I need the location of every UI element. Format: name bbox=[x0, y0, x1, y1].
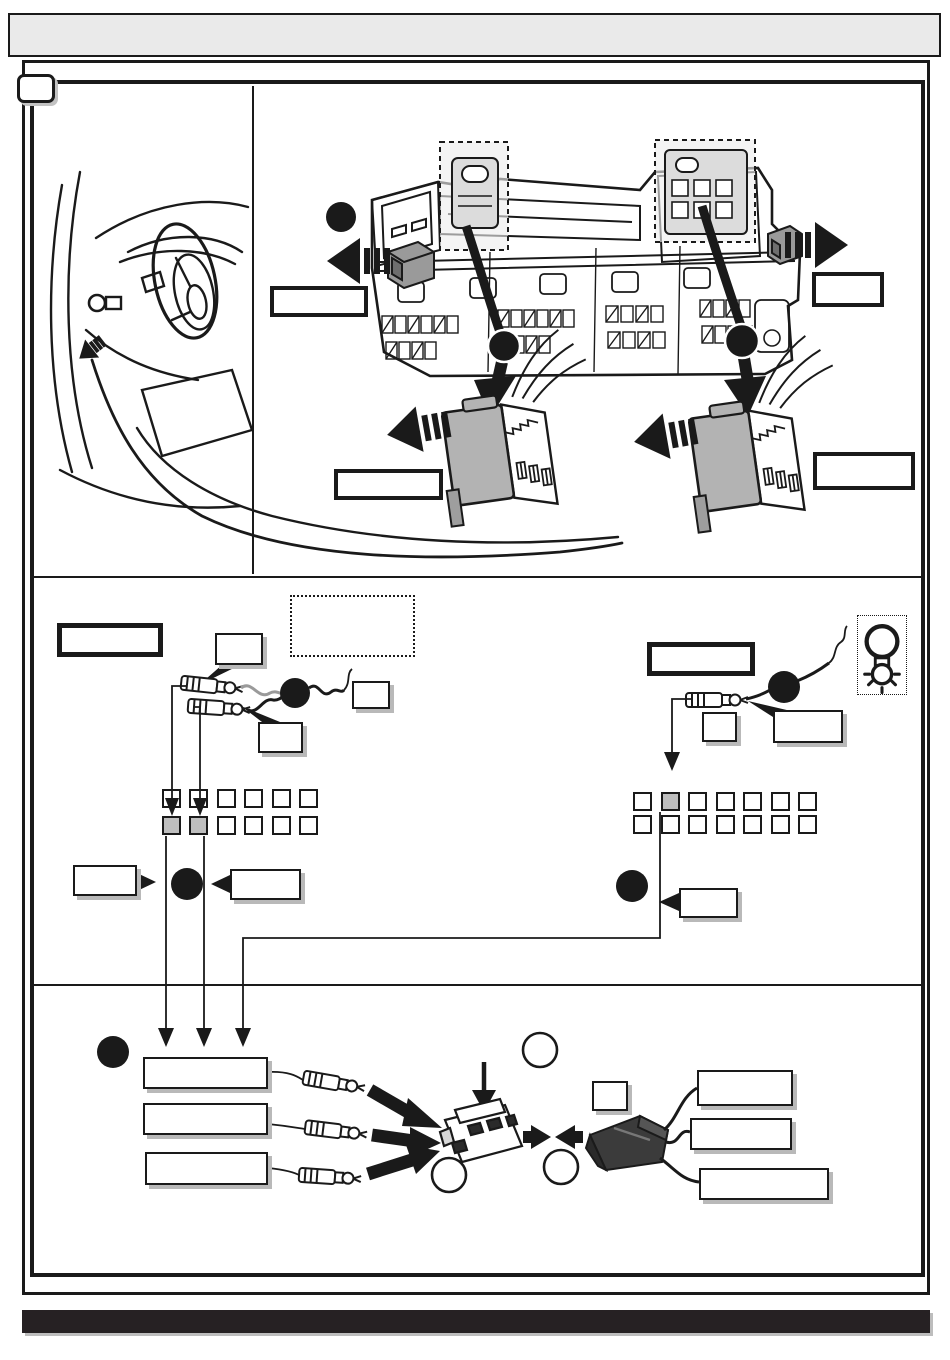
fuse-grid-cell bbox=[661, 792, 680, 811]
label-wire-2 bbox=[258, 722, 303, 753]
label-midleft-title bbox=[57, 623, 163, 657]
fuse-grid-cell bbox=[299, 816, 318, 835]
label-bottom-wire-2 bbox=[143, 1103, 268, 1135]
fuse-grid-cell bbox=[798, 815, 817, 834]
label-pin-left bbox=[73, 865, 137, 896]
vertical-divider bbox=[252, 86, 254, 574]
fuse-grid-cell bbox=[771, 815, 790, 834]
label-midright-title bbox=[647, 642, 755, 676]
fuse-grid-cell bbox=[272, 816, 291, 835]
fuse-grid-cell bbox=[189, 816, 208, 835]
label-module-left bbox=[270, 286, 368, 317]
footer-bar bbox=[22, 1310, 930, 1333]
label-out-wire-3 bbox=[699, 1168, 829, 1200]
fuse-grid-cell bbox=[743, 792, 762, 811]
label-connector-1 bbox=[334, 469, 443, 500]
label-out-wire-1 bbox=[697, 1070, 793, 1106]
header-title-bar bbox=[8, 13, 941, 57]
inline-box-bottom bbox=[592, 1081, 628, 1111]
fuse-grid-cell bbox=[217, 816, 236, 835]
label-wire-right bbox=[773, 710, 843, 743]
fuse-grid-cell bbox=[189, 789, 208, 808]
fuse-grid-cell bbox=[272, 789, 291, 808]
note-box-dotted bbox=[290, 595, 415, 657]
fuse-grid-cell bbox=[633, 792, 652, 811]
fuse-grid-cell bbox=[244, 789, 263, 808]
fuse-grid-cell bbox=[716, 815, 735, 834]
fuse-grid-cell bbox=[299, 789, 318, 808]
label-module-right bbox=[812, 272, 884, 307]
bulb-icon bbox=[858, 615, 906, 695]
label-wire-1 bbox=[215, 633, 263, 665]
label-bottom-wire-3 bbox=[145, 1152, 268, 1185]
instruction-sheet-page bbox=[0, 0, 950, 1360]
fuse-grid-cell bbox=[217, 789, 236, 808]
fuse-grid-cell bbox=[716, 792, 735, 811]
fuse-grid-cell bbox=[661, 815, 680, 834]
fuse-grid-cell bbox=[688, 792, 707, 811]
bulb-legend-box bbox=[857, 615, 907, 695]
fuse-grid-cell bbox=[798, 792, 817, 811]
fuse-grid-cell bbox=[771, 792, 790, 811]
fuse-pin-grid-right bbox=[633, 792, 817, 834]
horizontal-divider-2 bbox=[30, 984, 925, 986]
label-pin-right-side bbox=[679, 888, 738, 918]
fuse-grid-cell bbox=[162, 816, 181, 835]
fuse-grid-cell bbox=[162, 789, 181, 808]
inline-box-left bbox=[352, 681, 390, 709]
step-number-box bbox=[17, 74, 55, 103]
label-connector-2 bbox=[813, 452, 915, 490]
fuse-grid-cell bbox=[743, 815, 762, 834]
fuse-grid-cell bbox=[633, 815, 652, 834]
fuse-grid-cell bbox=[244, 816, 263, 835]
horizontal-divider-1 bbox=[30, 576, 925, 578]
label-pin-right bbox=[230, 869, 301, 900]
label-bottom-wire-1 bbox=[143, 1057, 268, 1089]
fuse-pin-grid-left bbox=[162, 789, 318, 835]
label-out-wire-2 bbox=[690, 1118, 792, 1150]
inline-box-right bbox=[702, 712, 737, 742]
fuse-grid-cell bbox=[688, 815, 707, 834]
